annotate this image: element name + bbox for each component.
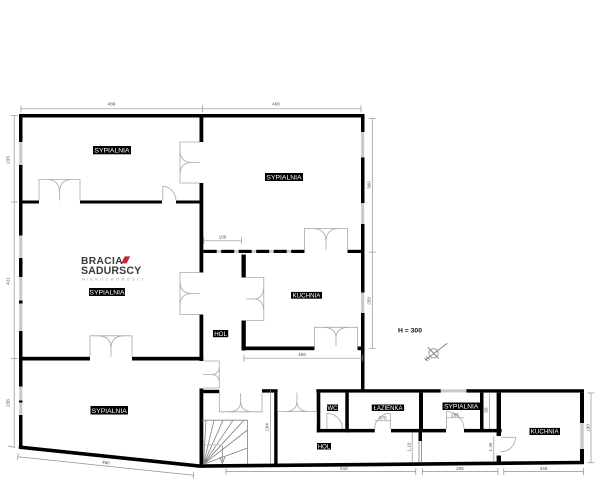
svg-text:100: 100 bbox=[219, 235, 227, 240]
svg-text:345: 345 bbox=[540, 466, 548, 471]
svg-text:1.45: 1.45 bbox=[488, 442, 493, 451]
svg-text:H = 300: H = 300 bbox=[398, 327, 422, 334]
svg-text:264: 264 bbox=[265, 423, 270, 431]
svg-text:489: 489 bbox=[108, 102, 116, 107]
svg-text:HOL: HOL bbox=[318, 444, 331, 450]
svg-text:1.10: 1.10 bbox=[406, 442, 411, 451]
svg-text:95: 95 bbox=[484, 407, 489, 413]
svg-text:265: 265 bbox=[451, 413, 459, 418]
svg-text:SADURSCY: SADURSCY bbox=[81, 265, 141, 277]
svg-text:SYPIALNIA: SYPIALNIA bbox=[444, 404, 479, 411]
svg-text:875: 875 bbox=[379, 416, 387, 421]
svg-text:SYPIALNIA: SYPIALNIA bbox=[266, 175, 302, 182]
svg-text:190: 190 bbox=[585, 424, 590, 432]
svg-text:SYPIALNIA: SYPIALNIA bbox=[92, 408, 128, 415]
svg-text:360: 360 bbox=[367, 181, 372, 189]
svg-text:456: 456 bbox=[298, 352, 306, 357]
svg-text:421: 421 bbox=[6, 277, 11, 285]
svg-text:KUCHNIA: KUCHNIA bbox=[293, 292, 322, 299]
svg-text:NIERUCHOMOŚCI: NIERUCHOMOŚCI bbox=[82, 277, 146, 282]
svg-text:233: 233 bbox=[6, 156, 11, 164]
svg-text:ŁAZIENKA: ŁAZIENKA bbox=[373, 406, 402, 412]
svg-text:259: 259 bbox=[367, 297, 372, 305]
svg-text:238: 238 bbox=[6, 399, 11, 407]
svg-text:KUCHNIA: KUCHNIA bbox=[531, 429, 560, 436]
svg-text:WC: WC bbox=[328, 406, 339, 412]
svg-text:HOL: HOL bbox=[214, 331, 227, 338]
svg-text:466: 466 bbox=[102, 460, 111, 466]
svg-text:205: 205 bbox=[456, 466, 464, 471]
svg-text:460: 460 bbox=[272, 102, 280, 107]
svg-text:510: 510 bbox=[340, 466, 348, 471]
svg-text:SYPIALNIA: SYPIALNIA bbox=[94, 148, 130, 155]
svg-text:SYPIALNIA: SYPIALNIA bbox=[89, 290, 125, 297]
